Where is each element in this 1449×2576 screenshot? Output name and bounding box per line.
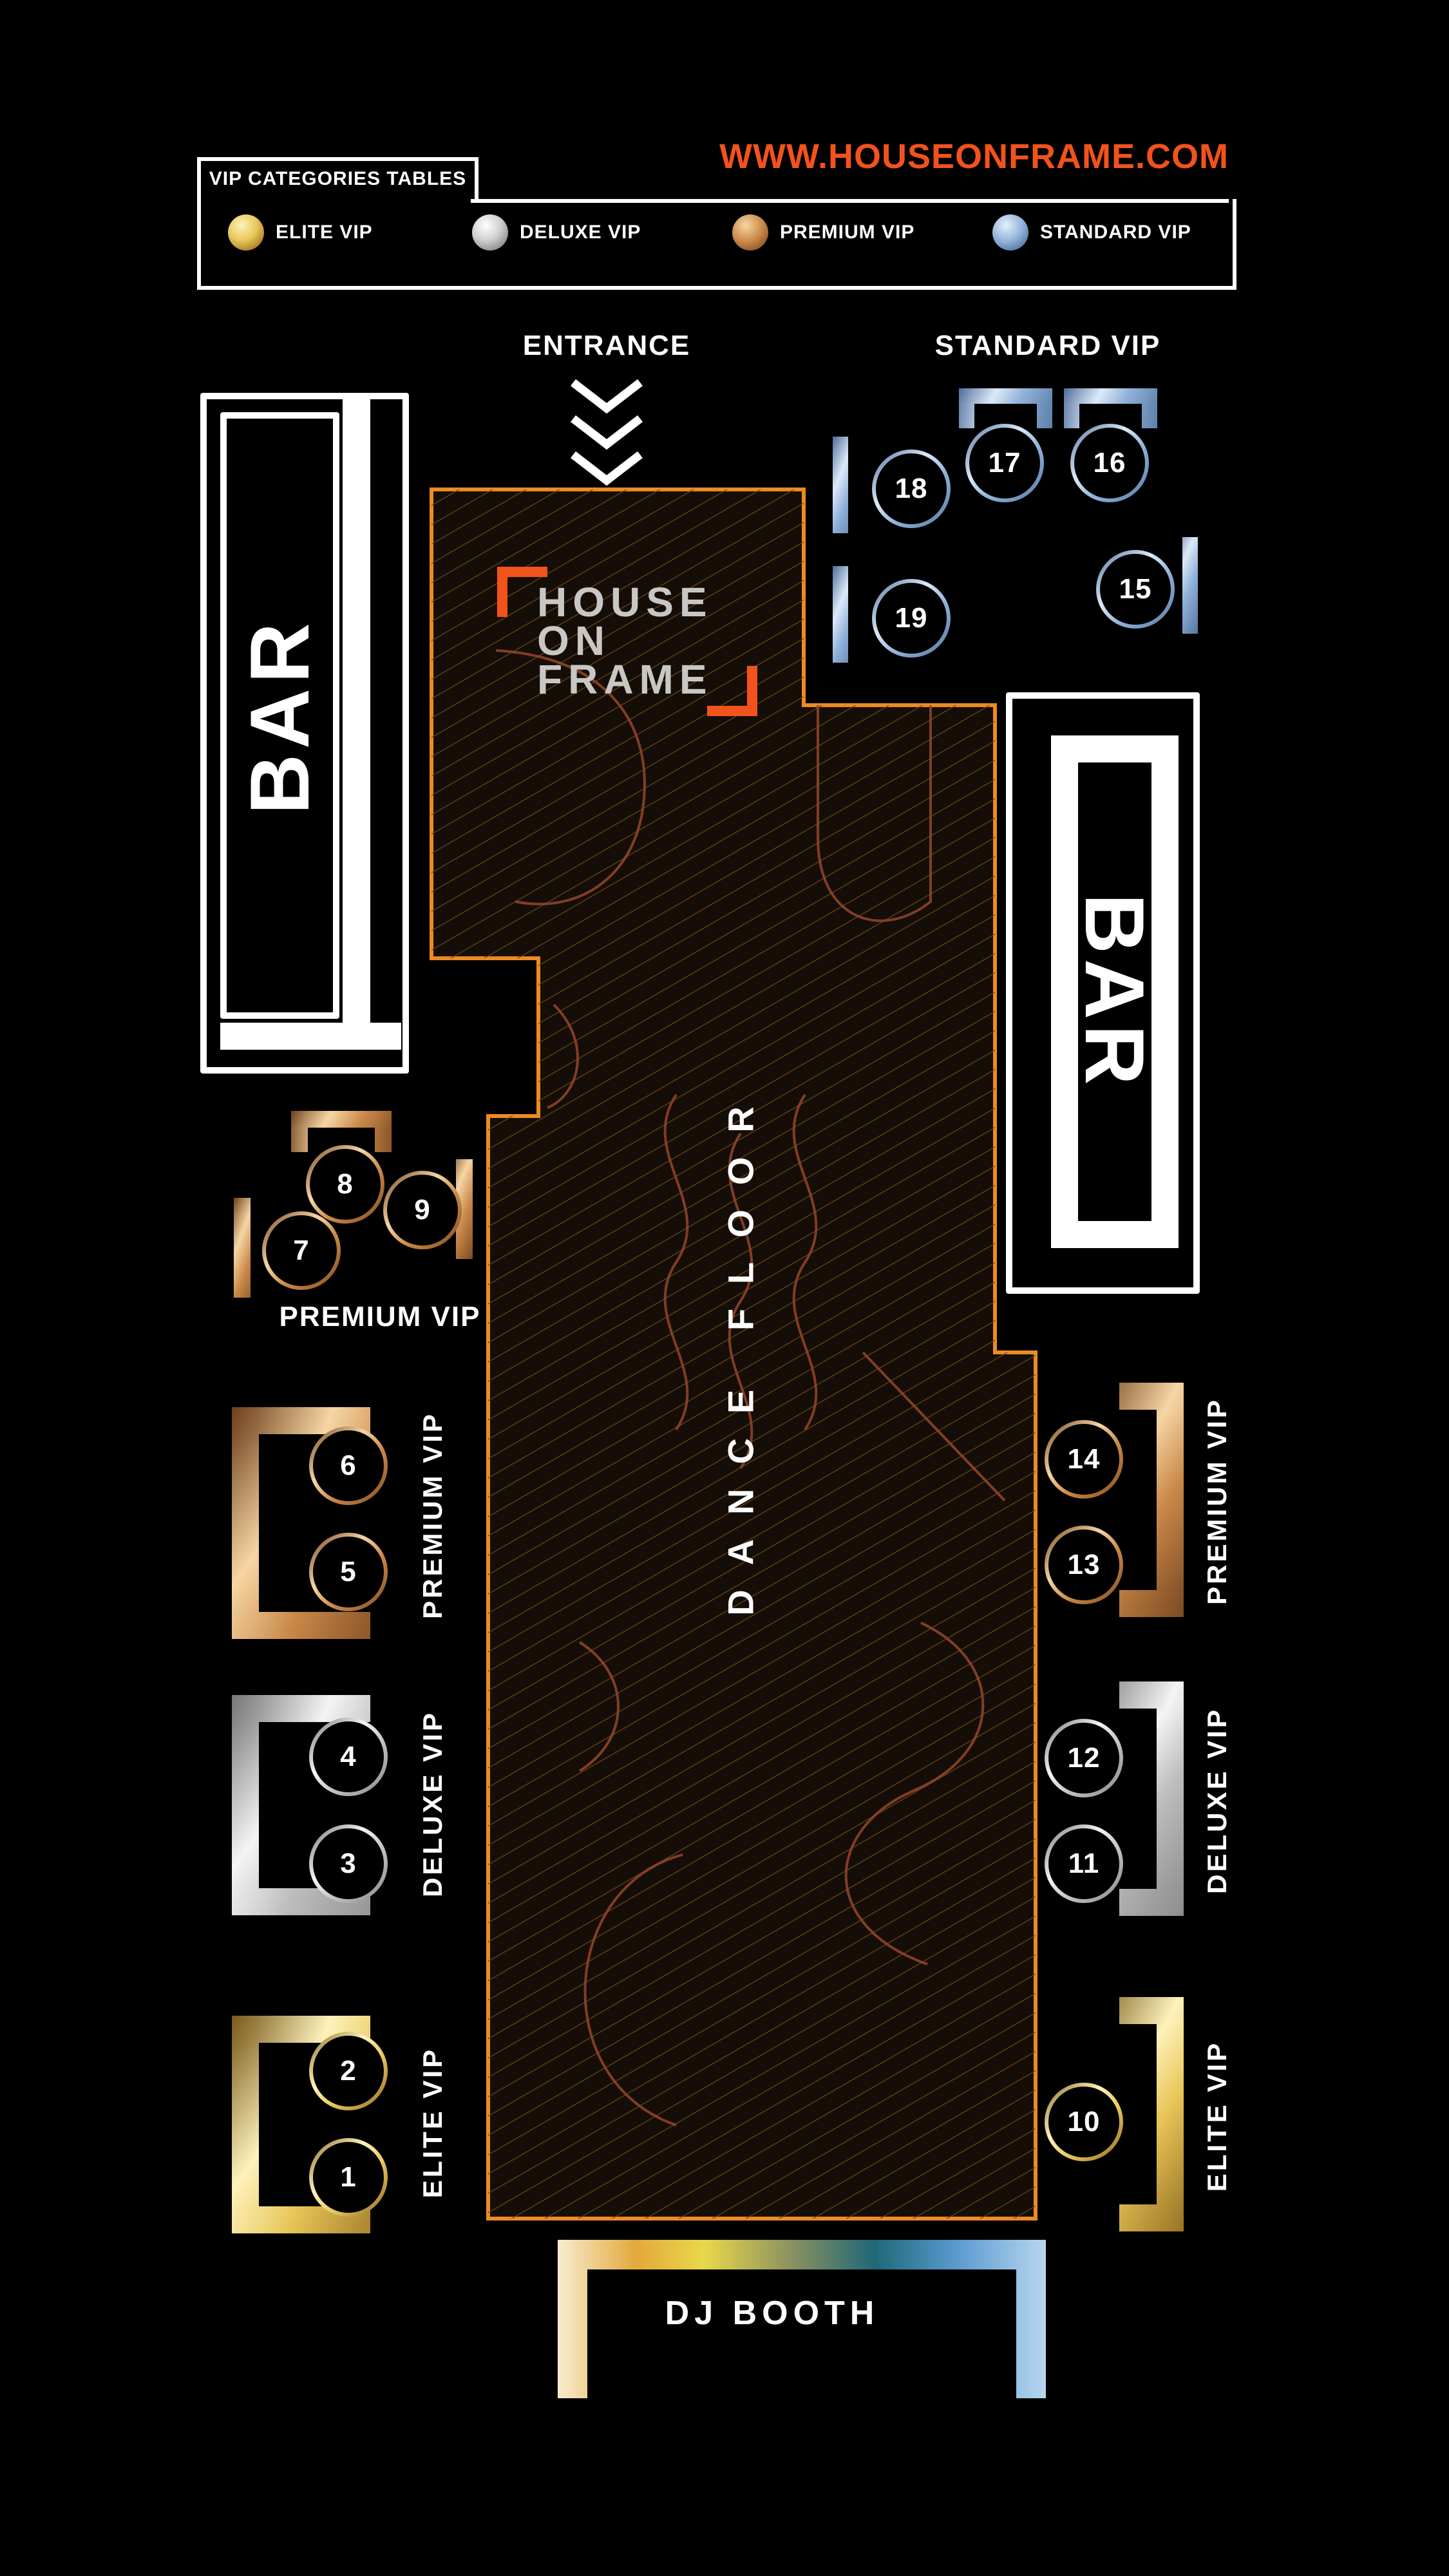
table-17-bracket: [959, 388, 1052, 428]
table-17[interactable]: 17: [965, 424, 1044, 502]
legend-item-elite: ELITE VIP: [276, 223, 373, 242]
table-2[interactable]: 2: [309, 2032, 388, 2110]
table-18[interactable]: 18: [872, 450, 951, 528]
table-15[interactable]: 15: [1096, 550, 1175, 629]
elite-right-label: ELITE VIP: [1202, 1955, 1232, 2277]
legend-item-standard: STANDARD VIP: [1040, 223, 1191, 242]
table-11[interactable]: 11: [1045, 1824, 1123, 1903]
standard-vip-label: STANDARD VIP: [919, 330, 1177, 362]
legend-box-top-border: [471, 199, 1229, 203]
table-7-bracket: [234, 1198, 263, 1298]
legend-item-premium: PREMIUM VIP: [780, 223, 914, 242]
deluxe-right-label: DELUXE VIP: [1202, 1640, 1232, 1962]
elite-right-bracket: [1119, 1997, 1184, 2231]
entrance-label: ENTRANCE: [510, 330, 703, 362]
logo-line-2: ON: [537, 621, 713, 660]
elite-vip-swatch-icon: [228, 214, 264, 251]
logo-corner-bottom-right-icon: [707, 666, 757, 716]
table-19-bracket: [833, 566, 862, 663]
legend-box: [197, 199, 1236, 290]
legend-item-deluxe: DELUXE VIP: [520, 223, 641, 242]
bar-right-label: BAR: [1073, 799, 1157, 1185]
bar-left-band-bottom: [220, 1023, 401, 1050]
premium-right-label: PREMIUM VIP: [1202, 1340, 1232, 1662]
logo-line-1: HOUSE: [537, 583, 713, 621]
table-6[interactable]: 6: [309, 1426, 388, 1505]
dance-floor-label: DANCE FLOOR: [720, 1059, 762, 1639]
premium-cluster-label: PREMIUM VIP: [251, 1301, 509, 1333]
table-12[interactable]: 12: [1045, 1719, 1123, 1797]
website-url[interactable]: WWW.HOUSEONFRAME.COM: [708, 137, 1229, 176]
table-5[interactable]: 5: [309, 1533, 388, 1611]
table-14[interactable]: 14: [1045, 1420, 1123, 1499]
dj-booth-label: DJ BOOTH: [558, 2294, 987, 2333]
table-3[interactable]: 3: [309, 1824, 388, 1903]
table-8[interactable]: 8: [306, 1145, 384, 1224]
table-7[interactable]: 7: [262, 1211, 341, 1290]
table-4[interactable]: 4: [309, 1718, 388, 1796]
table-13[interactable]: 13: [1045, 1526, 1123, 1604]
table-10[interactable]: 10: [1045, 2083, 1123, 2161]
deluxe-right-bracket: [1119, 1681, 1184, 1916]
club-floor-plan: VIP CATEGORIES TABLES ELITE VIP DELUXE V…: [0, 0, 1449, 2576]
elite-left-label: ELITE VIP: [418, 1962, 448, 2284]
table-1[interactable]: 1: [309, 2138, 388, 2217]
logo-line-3: FRAME: [537, 660, 713, 699]
bar-left-label: BAR: [238, 523, 321, 909]
deluxe-left-label: DELUXE VIP: [418, 1643, 448, 1965]
deluxe-vip-swatch-icon: [472, 214, 508, 251]
table-9[interactable]: 9: [383, 1171, 462, 1249]
standard-vip-swatch-icon: [992, 214, 1028, 251]
logo: HOUSE ON FRAME: [537, 583, 713, 699]
bar-left-band-vertical: [343, 399, 370, 1050]
legend-title-tab: VIP CATEGORIES TABLES: [197, 157, 478, 203]
table-19[interactable]: 19: [872, 579, 951, 658]
entrance-chevrons-icon: [568, 379, 645, 491]
premium-vip-swatch-icon: [732, 214, 768, 251]
table-16[interactable]: 16: [1070, 424, 1149, 502]
premium-right-bracket: [1119, 1383, 1184, 1617]
table-18-bracket: [833, 437, 862, 533]
table-16-bracket: [1064, 388, 1157, 428]
premium-left-label: PREMIUM VIP: [418, 1354, 448, 1676]
